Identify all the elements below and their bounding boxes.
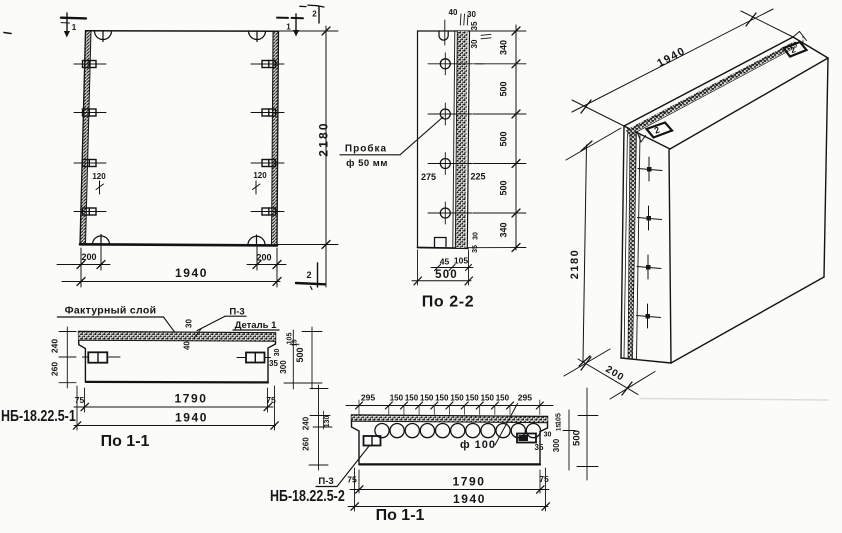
svg-text:240: 240 xyxy=(50,339,60,353)
svg-text:1: 1 xyxy=(72,23,77,32)
svg-text:340: 340 xyxy=(499,40,509,55)
svg-text:2: 2 xyxy=(312,10,317,19)
svg-text:1790: 1790 xyxy=(174,392,207,406)
svg-text:30: 30 xyxy=(274,349,281,357)
svg-text:300: 300 xyxy=(279,360,288,374)
svg-text:2180: 2180 xyxy=(569,249,581,279)
svg-text:300: 300 xyxy=(552,438,561,452)
svg-text:2180: 2180 xyxy=(317,121,331,157)
svg-text:35: 35 xyxy=(472,245,479,253)
svg-text:75: 75 xyxy=(266,395,276,405)
svg-text:75: 75 xyxy=(539,474,549,484)
svg-text:150: 150 xyxy=(481,394,495,403)
svg-text:1940: 1940 xyxy=(175,266,208,280)
svg-text:75: 75 xyxy=(347,475,357,485)
svg-text:2: 2 xyxy=(306,270,311,280)
svg-text:150: 150 xyxy=(405,394,419,403)
svg-text:30: 30 xyxy=(470,39,479,48)
svg-text:40: 40 xyxy=(449,8,458,17)
svg-text:130: 130 xyxy=(324,416,331,428)
svg-text:Пробка: Пробка xyxy=(345,143,387,155)
svg-text:225: 225 xyxy=(470,172,485,182)
svg-text:120: 120 xyxy=(253,171,267,180)
svg-text:15: 15 xyxy=(292,339,299,347)
svg-text:500: 500 xyxy=(499,131,509,146)
svg-text:Фактурный слой: Фактурный слой xyxy=(65,305,157,317)
svg-text:150: 150 xyxy=(420,394,434,403)
svg-text:105: 105 xyxy=(454,256,468,266)
svg-text:П-3: П-3 xyxy=(318,476,333,487)
svg-text:240: 240 xyxy=(302,416,311,430)
svg-text:260: 260 xyxy=(302,437,311,451)
svg-text:1940: 1940 xyxy=(175,411,208,425)
svg-text:По 2-2: По 2-2 xyxy=(422,294,474,311)
svg-text:150: 150 xyxy=(496,394,510,403)
svg-text:120: 120 xyxy=(92,172,106,181)
svg-text:Деталь 1: Деталь 1 xyxy=(235,320,277,331)
svg-text:30: 30 xyxy=(544,432,552,439)
svg-text:260: 260 xyxy=(50,362,60,376)
svg-text:НБ-18.22.5-1: НБ-18.22.5-1 xyxy=(1,408,76,426)
svg-text:35: 35 xyxy=(535,443,544,452)
svg-text:150: 150 xyxy=(465,394,479,403)
svg-text:275: 275 xyxy=(421,172,436,182)
svg-text:500: 500 xyxy=(499,81,509,96)
svg-text:150: 150 xyxy=(390,394,404,403)
svg-text:П-3: П-3 xyxy=(229,307,244,318)
svg-text:30: 30 xyxy=(184,319,193,328)
svg-text:35: 35 xyxy=(269,359,278,368)
svg-text:340: 340 xyxy=(499,222,509,237)
svg-text:150: 150 xyxy=(435,394,449,403)
svg-text:500: 500 xyxy=(295,347,305,362)
svg-text:500: 500 xyxy=(499,180,509,195)
svg-text:1: 1 xyxy=(286,23,291,32)
svg-text:500: 500 xyxy=(435,269,458,281)
svg-text:По 1-1: По 1-1 xyxy=(101,433,150,450)
svg-text:30: 30 xyxy=(467,10,476,19)
svg-text:75: 75 xyxy=(75,395,85,405)
svg-text:45: 45 xyxy=(440,257,450,267)
svg-text:НБ-18.22.5-2: НБ-18.22.5-2 xyxy=(270,488,345,506)
svg-text:200: 200 xyxy=(256,253,271,263)
svg-text:15: 15 xyxy=(556,424,563,432)
svg-text:ф 100: ф 100 xyxy=(460,439,496,451)
svg-text:150: 150 xyxy=(450,394,464,403)
svg-text:40: 40 xyxy=(182,341,191,350)
svg-text:200: 200 xyxy=(81,252,96,262)
svg-text:295: 295 xyxy=(518,393,532,403)
svg-text:500: 500 xyxy=(572,430,583,446)
svg-text:1790: 1790 xyxy=(452,475,485,489)
svg-text:35: 35 xyxy=(470,21,479,30)
svg-text:По 1-1: По 1-1 xyxy=(376,507,425,524)
svg-text:30: 30 xyxy=(473,232,480,240)
svg-text:1940: 1940 xyxy=(453,492,486,506)
svg-text:295: 295 xyxy=(361,393,375,403)
svg-text:105: 105 xyxy=(556,413,563,425)
svg-text:ф 50 мм: ф 50 мм xyxy=(346,158,388,169)
